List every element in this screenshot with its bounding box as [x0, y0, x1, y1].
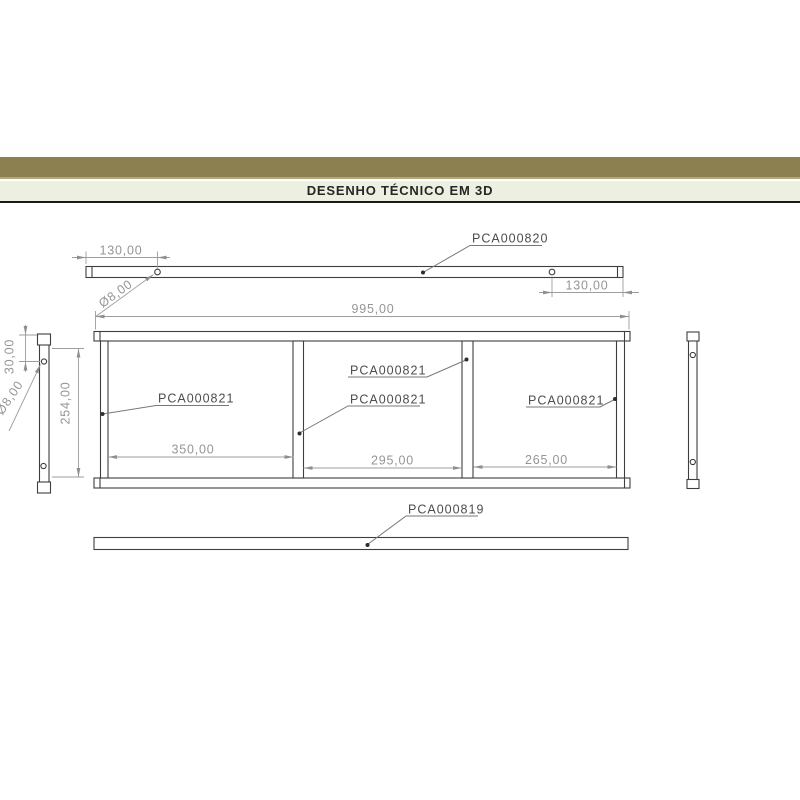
label-cross-member-left: PCA000821 [101, 392, 235, 417]
dim-hole-offset-top-left: 130,00 [72, 244, 170, 269]
dim-text: Ø8,00 [0, 378, 26, 417]
product-drawing-page: DESENHO TÉCNICO EM 3D [0, 0, 800, 800]
part-label: PCA000820 [472, 232, 548, 246]
part-label: PCA000821 [528, 394, 604, 408]
label-cross-member-middle: PCA000821 [298, 393, 427, 436]
frame-right-post [617, 341, 625, 478]
dim-text: 30,00 [3, 339, 17, 374]
frame-mid-post-1 [293, 341, 304, 478]
frame-left-post [101, 341, 109, 478]
dim-text: 350,00 [171, 443, 214, 457]
label-cross-member-right: PCA000821 [526, 394, 617, 408]
technical-drawing: 130,00 130,00 995,00 Ø8,00 [0, 0, 800, 800]
dim-frame-height: 254,00 [52, 349, 84, 478]
right-side-piece [687, 332, 699, 489]
dim-text: 130,00 [99, 244, 142, 258]
part-label: PCA000821 [350, 393, 426, 407]
part-label: PCA000819 [408, 503, 484, 517]
left-side-piece [38, 334, 51, 493]
dim-frame-width: 995,00 [96, 302, 630, 330]
part-label: PCA000821 [350, 364, 426, 378]
dim-bay-3: 265,00 [474, 453, 617, 469]
dim-hole-offset-top-right: 130,00 [539, 279, 639, 298]
dim-text: 995,00 [351, 302, 394, 316]
dim-bay-1: 350,00 [108, 443, 294, 459]
dim-text: 265,00 [525, 453, 568, 467]
dim-text: Ø8,00 [96, 277, 135, 311]
frame-top-rail [94, 332, 630, 342]
frame-bottom-rail [94, 478, 630, 488]
part-label: PCA000821 [158, 392, 234, 406]
hole-side-bottom [41, 463, 46, 468]
hole-side-top [41, 359, 46, 364]
hole-top-bar-right [549, 269, 555, 275]
bottom-bar-part [94, 538, 628, 550]
dim-hole-diameter-top: Ø8,00 [95, 275, 154, 318]
dim-bay-2: 295,00 [304, 454, 463, 470]
dim-text: 254,00 [59, 381, 73, 424]
label-cross-member-upper: PCA000821 [348, 358, 469, 378]
dim-text: 130,00 [565, 279, 608, 293]
dim-text: 295,00 [371, 454, 414, 468]
dim-side-hole-offset: 30,00 [3, 325, 41, 374]
hole-top-bar-left [155, 269, 161, 275]
top-bar-part [86, 267, 623, 278]
